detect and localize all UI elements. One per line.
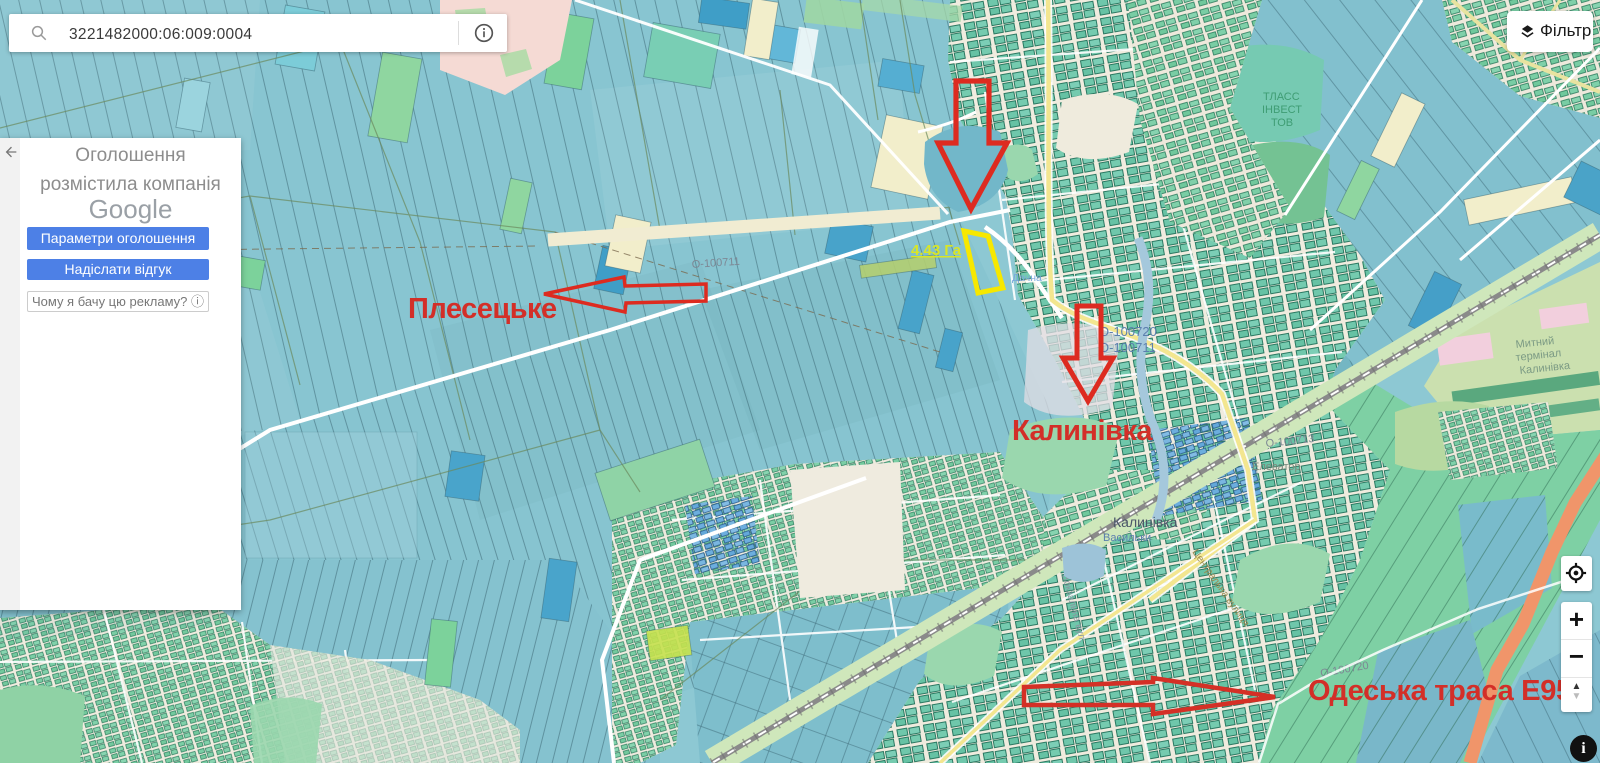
svg-text:Калинівка: Калинівка — [1113, 514, 1178, 530]
svg-text:Плесецьке: Плесецьке — [408, 293, 557, 325]
svg-text:О-100711: О-100711 — [1099, 340, 1156, 355]
svg-text:ТОВ: ТОВ — [1271, 117, 1293, 129]
svg-text:Васильки: Васильки — [1103, 532, 1151, 544]
svg-text:ТЛАСС: ТЛАСС — [1263, 91, 1300, 103]
svg-text:Калинівка: Калинівка — [1012, 415, 1153, 447]
svg-text:ІНВЕСТ: ІНВЕСТ — [1262, 104, 1302, 116]
svg-text:4.43 Га: 4.43 Га — [911, 242, 962, 259]
svg-text:Елеватор: Елеватор — [1252, 461, 1301, 473]
svg-text:Дачна: Дачна — [1012, 272, 1042, 284]
svg-text:Одеська траса Е95: Одеська траса Е95 — [1308, 675, 1572, 707]
svg-text:О-100720: О-100720 — [1099, 324, 1157, 339]
